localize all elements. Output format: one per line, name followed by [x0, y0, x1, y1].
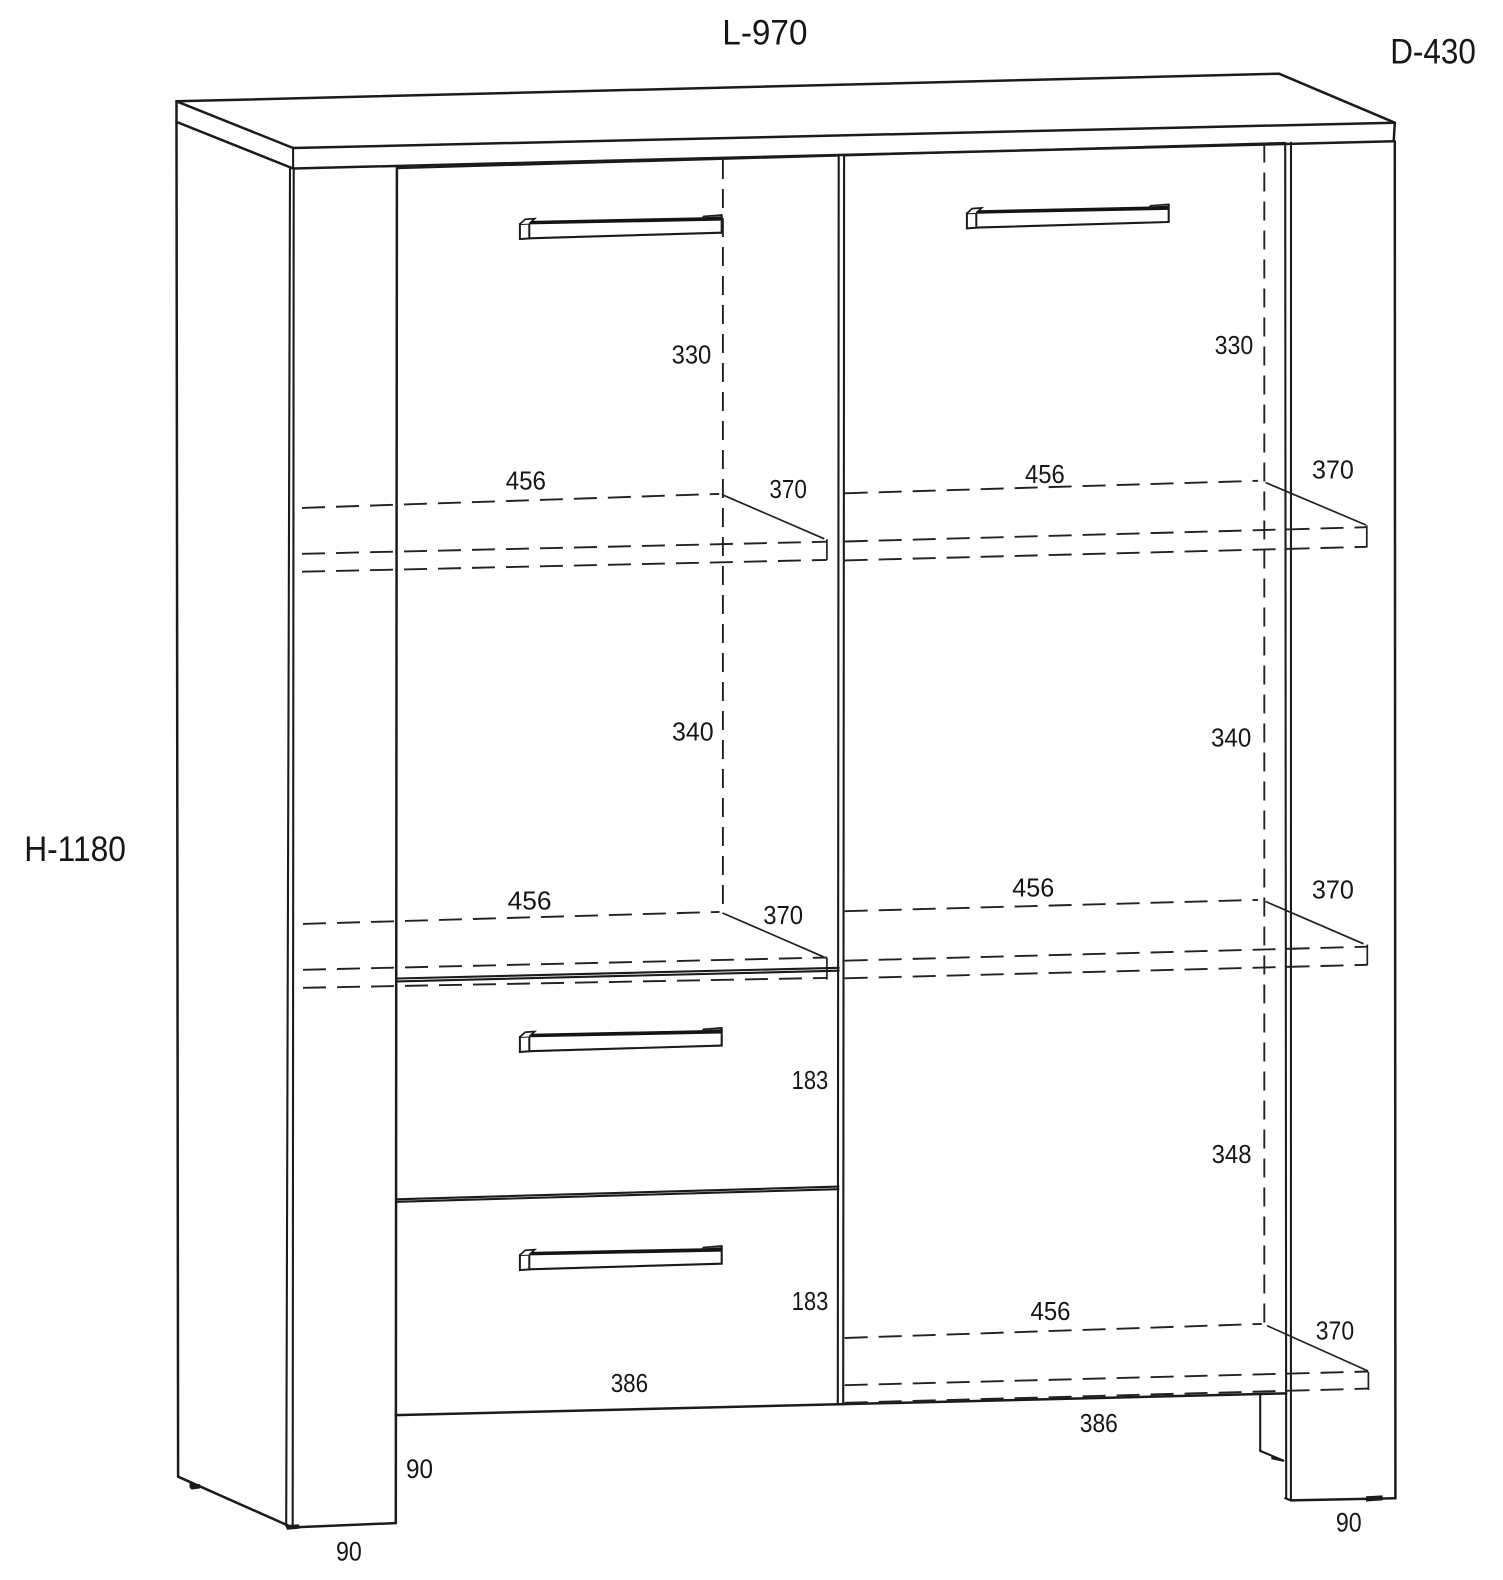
svg-text:456: 456	[1031, 1296, 1071, 1326]
svg-text:370: 370	[769, 474, 807, 504]
svg-text:370: 370	[1316, 1316, 1354, 1346]
svg-text:340: 340	[1211, 723, 1251, 753]
svg-text:386: 386	[1080, 1408, 1118, 1438]
svg-text:370: 370	[1312, 455, 1354, 485]
svg-text:456: 456	[1025, 459, 1065, 489]
svg-text:183: 183	[792, 1286, 829, 1316]
svg-text:90: 90	[406, 1454, 433, 1484]
svg-text:370: 370	[763, 900, 803, 930]
svg-text:183: 183	[792, 1065, 829, 1095]
svg-text:348: 348	[1212, 1139, 1252, 1169]
svg-text:L-970: L-970	[722, 14, 807, 53]
svg-text:D-430: D-430	[1390, 33, 1476, 72]
svg-text:90: 90	[1336, 1508, 1362, 1538]
svg-text:H-1180: H-1180	[24, 830, 126, 869]
svg-text:340: 340	[672, 716, 714, 746]
svg-text:330: 330	[1215, 330, 1254, 360]
svg-text:456: 456	[508, 885, 552, 915]
svg-text:90: 90	[336, 1536, 362, 1566]
svg-text:386: 386	[611, 1368, 648, 1398]
svg-text:456: 456	[506, 465, 546, 495]
svg-text:370: 370	[1312, 875, 1354, 905]
svg-text:330: 330	[672, 339, 712, 369]
svg-text:456: 456	[1012, 873, 1054, 903]
